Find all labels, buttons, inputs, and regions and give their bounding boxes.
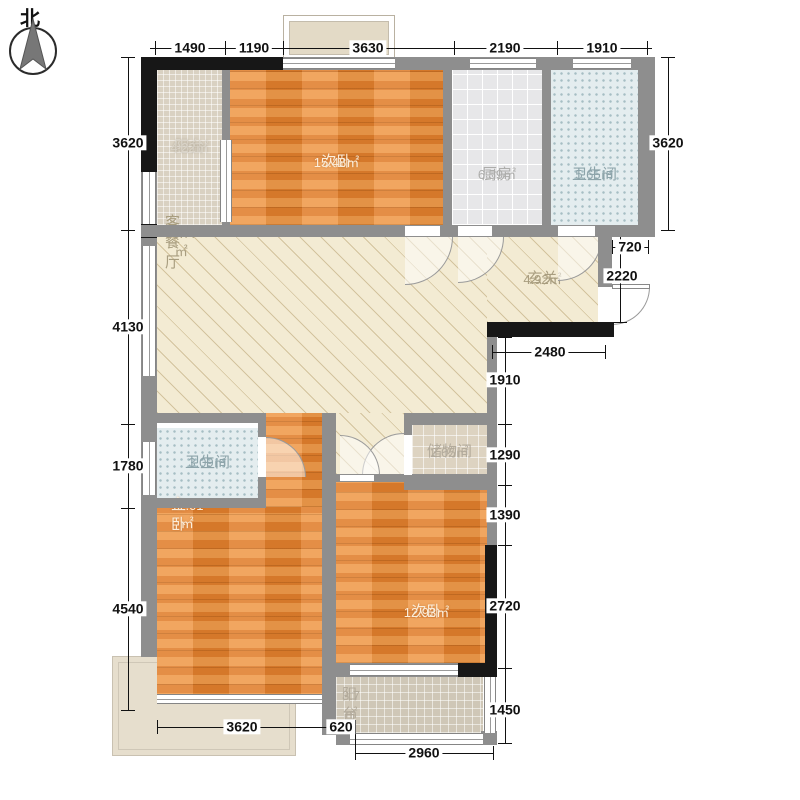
- entry-door-leaf: [612, 284, 650, 289]
- wall-bedroom-kitchen: [443, 70, 452, 225]
- dim-label: 720: [615, 239, 644, 254]
- bay-window-top: [283, 58, 395, 69]
- bedroom-bottom-door-gap: [340, 475, 374, 481]
- room-bath-top: 卫生间 5.65㎡: [551, 70, 638, 225]
- dim-tick: [557, 41, 558, 55]
- room-name: 厨房: [482, 165, 512, 185]
- dim-label: 1780: [109, 458, 146, 473]
- dim-tick: [612, 240, 613, 254]
- dim-label: 1190: [236, 40, 272, 55]
- dim-label: 3630: [349, 40, 386, 55]
- room-master: 主卧 17.01㎡: [157, 507, 322, 702]
- dim-label: 3620: [223, 719, 260, 734]
- room-storage: 储物间 2.05㎡: [412, 425, 487, 480]
- dim-label: 620: [326, 719, 355, 734]
- balcony-bottom-window: [350, 733, 483, 745]
- floor-plan: 北 阳台 4.22㎡ 次卧 15.48㎡ 厨房 6.59㎡ 卫生间 5.65㎡: [0, 0, 800, 800]
- dim-label: 3620: [649, 135, 686, 150]
- room-area: 2.05㎡: [430, 444, 468, 462]
- room-name: 玄关: [527, 269, 557, 289]
- balcony-corner-right: [481, 731, 497, 745]
- room-name: 阳台: [174, 137, 204, 157]
- dim-label: 1290: [486, 447, 523, 462]
- kitchen-window: [470, 58, 536, 69]
- dim-label: 1390: [486, 507, 523, 522]
- dim-tick: [605, 345, 606, 359]
- dim-tick: [498, 485, 512, 486]
- wall-living-bottom-left: [141, 413, 266, 423]
- room-bedroom-top: 次卧 15.48㎡: [230, 70, 443, 225]
- room-area: 4.22㎡: [170, 139, 208, 157]
- entry-door-arc: [612, 287, 650, 325]
- room-name: 储物间: [427, 442, 472, 462]
- entry-door-gap: [599, 287, 611, 322]
- room-area: 15.48㎡: [314, 154, 360, 172]
- room-name: 卫生间: [572, 165, 617, 185]
- dim-label: 2220: [603, 268, 640, 283]
- bath-top-door-gap: [558, 226, 595, 236]
- wall-storage-top: [404, 413, 497, 425]
- storage-door-gap: [404, 435, 412, 475]
- dim-tick: [121, 230, 135, 231]
- master-bottom-window: [157, 694, 322, 704]
- wall-left-dark: [141, 57, 157, 172]
- dim-label: 1910: [486, 372, 523, 387]
- dim-tick: [493, 746, 494, 760]
- balcony-bedroom-window: [220, 140, 232, 222]
- dim-tick: [157, 720, 158, 734]
- room-area: 4.92㎡: [523, 271, 561, 289]
- bath-top-window: [573, 58, 631, 69]
- bedroom-bottom-window: [350, 664, 458, 676]
- dim-tick: [121, 710, 135, 711]
- room-area: 6.59㎡: [478, 166, 516, 184]
- dim-tick: [647, 41, 648, 55]
- dim-label: 3620: [109, 135, 146, 150]
- dim-label: 2720: [486, 598, 523, 613]
- dim-tick: [121, 57, 135, 58]
- dim-label: 2960: [405, 745, 442, 760]
- balcony-top-window: [142, 172, 156, 224]
- bath-mid-door-gap: [258, 437, 266, 477]
- wall-bath-mid-bottom: [141, 498, 266, 508]
- dim-tick: [613, 322, 627, 323]
- dim-tick: [121, 424, 135, 425]
- wall-kitchen-bath: [542, 70, 551, 225]
- room-kitchen: 厨房 6.59㎡: [452, 70, 542, 225]
- wall-top-dark: [141, 57, 283, 70]
- wall-entry-bottom-dark: [487, 322, 614, 337]
- living-window: [142, 246, 156, 376]
- dim-label: 1450: [486, 702, 523, 717]
- dim-tick: [498, 743, 512, 744]
- wall-bb-corner-dark: [458, 663, 497, 677]
- room-bedroom-bottom: 次卧 12.93㎡: [336, 482, 487, 663]
- bedroom-top-door-gap: [405, 226, 440, 236]
- dim-label: 2190: [486, 40, 523, 55]
- dim-label: 4540: [109, 601, 146, 616]
- dim-label: 4130: [109, 319, 146, 334]
- dim-tick: [648, 240, 649, 254]
- dim-tick: [155, 41, 156, 55]
- room-area: 3.09㎡: [188, 454, 226, 472]
- room-area: 3.7㎡: [342, 687, 360, 722]
- dim-tick: [454, 41, 455, 55]
- room-bath-mid: 卫生间 3.09㎡: [157, 428, 258, 498]
- dim-label: 1490: [171, 40, 208, 55]
- dim-line-right-inner: [505, 337, 506, 743]
- room-balcony-bottom: 阳台 3.7㎡: [336, 677, 483, 733]
- dim-tick: [661, 57, 675, 58]
- room-area: 5.65㎡: [575, 166, 613, 184]
- compass-needle-icon: [9, 17, 57, 75]
- kitchen-door-gap: [458, 226, 492, 236]
- room-name: 次卧: [411, 602, 441, 622]
- dim-tick: [498, 424, 512, 425]
- dim-tick: [498, 337, 512, 338]
- dim-tick: [498, 545, 512, 546]
- dim-label: 2480: [531, 344, 568, 359]
- dim-label: 1910: [583, 40, 620, 55]
- dim-tick: [498, 668, 512, 669]
- room-name: 次卧: [321, 152, 351, 172]
- wall-center: [322, 413, 336, 735]
- dim-tick: [225, 41, 226, 55]
- dim-tick: [121, 508, 135, 509]
- dim-tick: [661, 230, 675, 231]
- room-name: 卫生间: [185, 453, 230, 473]
- room-area: 12.93㎡: [404, 604, 450, 622]
- dim-tick: [283, 41, 284, 55]
- dim-tick: [492, 345, 493, 359]
- room-balcony-top: 阳台 4.22㎡: [157, 70, 222, 225]
